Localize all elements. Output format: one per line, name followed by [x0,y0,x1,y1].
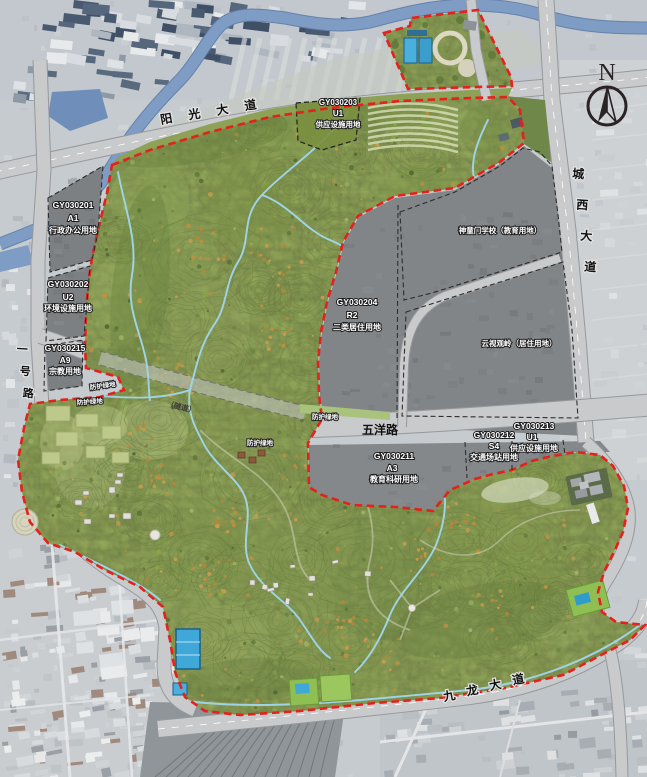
svg-text:S4: S4 [489,441,500,451]
svg-text:A9: A9 [60,355,71,365]
svg-text:教育科研用地: 教育科研用地 [369,474,418,484]
svg-text:行政办公用地: 行政办公用地 [48,225,97,235]
svg-text:光: 光 [186,106,201,123]
svg-text:供应设施用地: 供应设施用地 [509,443,558,453]
svg-text:A1: A1 [68,213,79,223]
svg-text:防护绿地: 防护绿地 [247,438,274,447]
svg-text:GY030203: GY030203 [319,98,358,107]
svg-text:GY030202: GY030202 [48,279,89,289]
svg-text:宗教用地: 宗教用地 [49,366,81,376]
svg-text:道: 道 [584,259,597,275]
svg-text:号: 号 [19,365,31,379]
svg-text:大: 大 [580,228,593,244]
svg-text:GY030213: GY030213 [514,421,555,431]
svg-text:云视观岭（居住用地）: 云视观岭（居住用地） [482,338,557,348]
svg-text:西: 西 [576,198,589,213]
svg-text:U1: U1 [527,432,538,442]
svg-text:防护绿地: 防护绿地 [312,412,339,421]
svg-text:神童门学校（教育用地）: 神童门学校（教育用地） [459,225,542,235]
svg-text:GY030215: GY030215 [45,343,86,353]
svg-text:GY030204: GY030204 [337,297,378,307]
svg-text:R2: R2 [347,310,358,320]
svg-text:U2: U2 [63,292,74,302]
svg-text:城: 城 [572,166,585,182]
svg-text:二类居住用地: 二类居住用地 [333,322,381,332]
svg-text:环境设施用地: 环境设施用地 [44,303,92,313]
svg-text:GY030201: GY030201 [53,200,94,210]
svg-text:GY030212: GY030212 [474,430,515,440]
svg-text:大: 大 [215,101,229,118]
svg-text:GY030211: GY030211 [374,451,414,461]
svg-text:道: 道 [243,96,257,113]
svg-text:供应设施用地: 供应设施用地 [315,119,361,129]
svg-text:阳: 阳 [159,110,173,127]
svg-text:一: 一 [16,344,28,357]
svg-text:交通场站用地: 交通场站用地 [470,452,518,462]
svg-text:N: N [598,60,615,86]
svg-text:U1: U1 [333,109,344,118]
svg-text:路: 路 [22,386,35,401]
svg-text:A3: A3 [387,463,398,473]
svg-text:五洋路: 五洋路 [362,422,399,437]
